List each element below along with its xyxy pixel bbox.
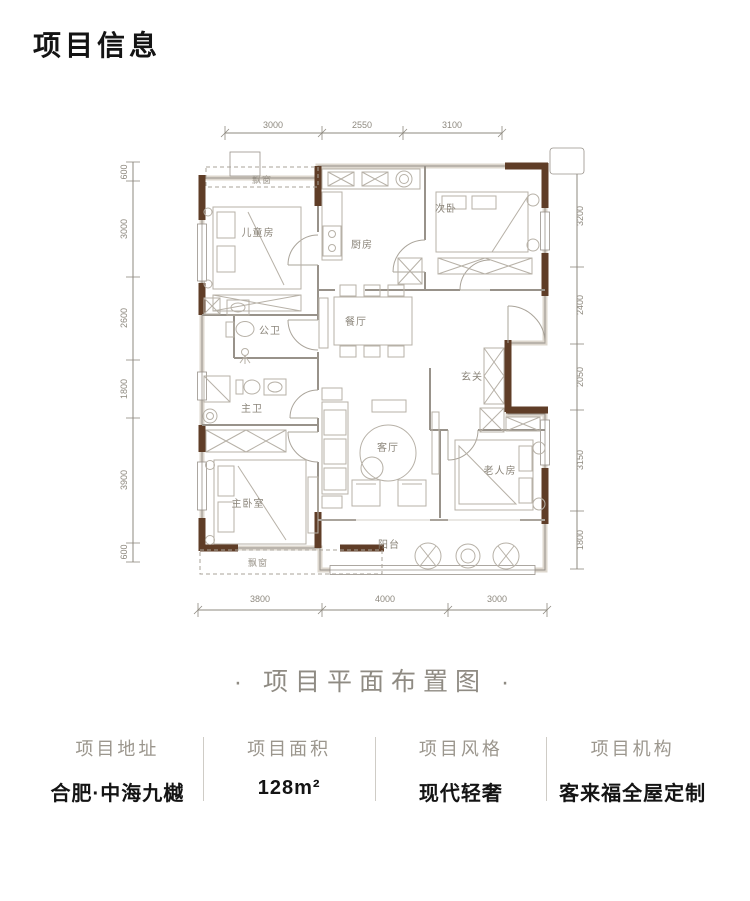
plan-subtitle: · 项目平面布置图 · [0, 662, 750, 698]
dim-top-1: 3000 [263, 120, 283, 130]
info-value-area: 128m² [204, 777, 375, 800]
room-label-children: 儿童房 [242, 226, 275, 239]
info-value-agency: 客来福全屋定制 [547, 777, 718, 806]
dim-left-3: 2600 [119, 308, 129, 328]
info-value-style: 现代轻奢 [376, 777, 547, 806]
dim-left-1: 600 [119, 164, 129, 179]
room-label-foyer: 玄关 [461, 370, 483, 383]
balcony-furniture-icon [415, 543, 519, 569]
dim-right-1: 3200 [575, 206, 585, 226]
info-label-area: 项目面积 [204, 735, 375, 761]
dim-left-4: 1800 [119, 379, 129, 399]
dim-right-4: 3150 [575, 450, 585, 470]
room-label-bath-master: 主卫 [241, 403, 263, 415]
dim-left-2: 3000 [119, 219, 129, 239]
dim-bottom-2: 4000 [375, 594, 395, 604]
room-label-kitchen: 厨房 [351, 238, 373, 251]
room-label-balcony: 阳台 [378, 538, 400, 551]
info-col-address: 项目地址 合肥·中海九樾 [32, 735, 203, 806]
info-label-style: 项目风格 [376, 735, 547, 761]
dim-right-5: 1800 [575, 530, 585, 550]
dim-left-5: 3900 [119, 470, 129, 490]
room-label-bedroom2: 次卧 [435, 202, 457, 215]
info-col-area: 项目面积 128m² [204, 735, 375, 806]
room-label-bay-bottom: 飘窗 [248, 557, 268, 568]
wardrobe-icon [213, 295, 301, 311]
room-label-master: 主卧室 [232, 497, 265, 510]
bed-icon [204, 207, 301, 289]
room-labels: 飘窗 儿童房 厨房 次卧 餐厅 公卫 主卫 玄关 客厅 主卧室 老人房 阳台 飘… [232, 174, 517, 568]
dim-right-3: 2050 [575, 367, 585, 387]
room-label-living: 客厅 [377, 441, 399, 454]
info-col-agency: 项目机构 客来福全屋定制 [547, 735, 718, 806]
bay-windows [200, 167, 382, 574]
shower-icon [203, 376, 286, 423]
info-label-agency: 项目机构 [547, 735, 718, 761]
kitchen-counter-icon [322, 169, 422, 284]
dimension-lines [126, 126, 584, 617]
info-label-address: 项目地址 [32, 735, 203, 761]
room-label-bath-public: 公卫 [259, 326, 281, 337]
info-col-style: 项目风格 现代轻奢 [376, 735, 547, 806]
dimension-labels: 3000 2550 3100 600 3000 2600 1800 3900 6… [119, 120, 585, 604]
room-label-dining: 餐厅 [345, 315, 367, 328]
wardrobe-icon [206, 430, 286, 452]
dim-left-6: 600 [119, 544, 129, 559]
dim-top-3: 3100 [442, 120, 462, 130]
room-label-elder: 老人房 [484, 464, 517, 477]
dim-bottom-3: 3000 [487, 594, 507, 604]
project-info: 项目地址 合肥·中海九樾 项目面积 128m² 项目风格 现代轻奢 项目机构 客… [32, 735, 718, 806]
floor-plan: 3000 2550 3100 600 3000 2600 1800 3900 6… [0, 0, 750, 640]
bed-icon [436, 192, 539, 252]
room-label-bay-top: 飘窗 [252, 174, 272, 185]
dim-bottom-1: 3800 [250, 594, 270, 604]
dim-right-2: 2400 [575, 295, 585, 315]
info-value-address: 合肥·中海九樾 [32, 777, 203, 806]
dim-top-2: 2550 [352, 120, 372, 130]
